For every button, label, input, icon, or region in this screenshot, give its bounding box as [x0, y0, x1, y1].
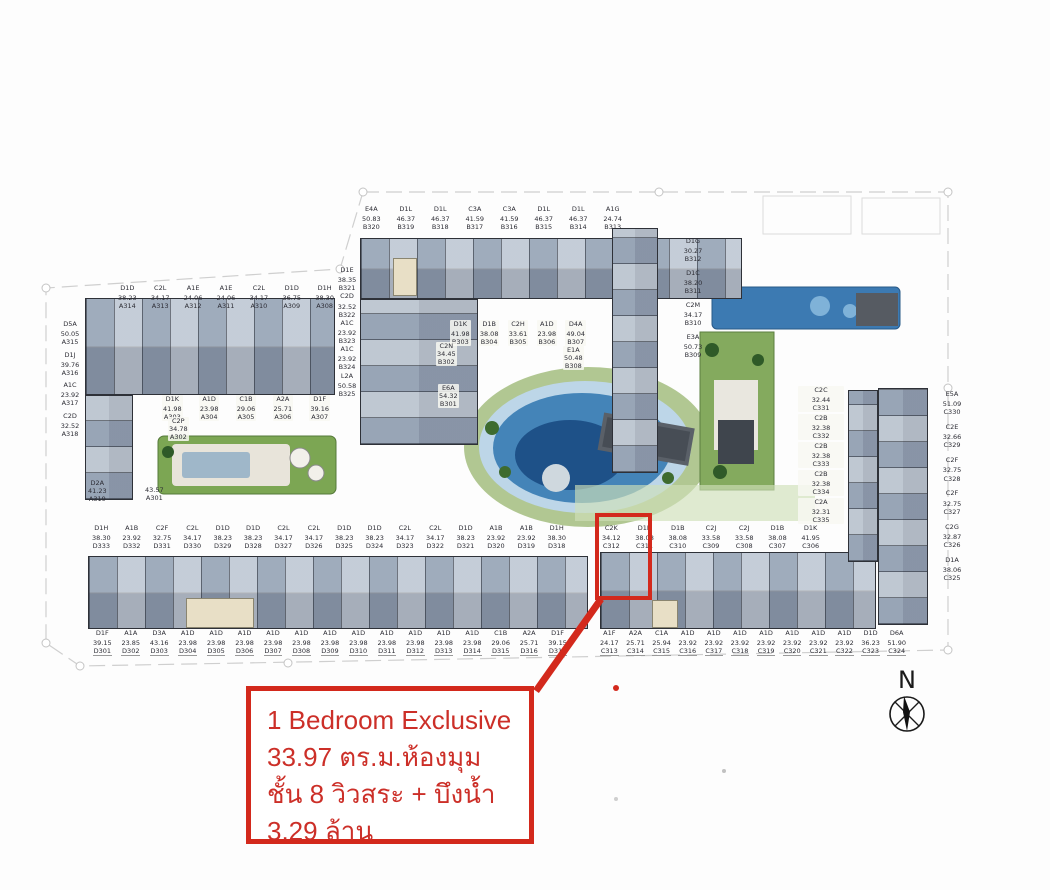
- building-b-left-labels: D1E38.35B321C2D32.52B322A1C23.92B323A1C2…: [331, 266, 363, 396]
- unit-label: D1K41.95C306: [801, 524, 820, 550]
- unit-label: A1B23.92D332: [122, 524, 141, 550]
- unit-label: A1D23.98D305: [207, 629, 226, 656]
- unit-label: L2A50.58B325: [331, 372, 363, 398]
- unit-label: A1A23.85D302: [121, 629, 140, 656]
- building-c-wing: [878, 388, 928, 625]
- unit-label: A1B23.92D319: [517, 524, 536, 550]
- unit-label: C2F32.75D331: [153, 524, 172, 550]
- building-a-top-labels: D1D38.23A314C2L34.17A313A1E24.06A312A1E2…: [118, 284, 334, 310]
- unit-label: A1D23.98D312: [406, 629, 425, 656]
- unit-label: A1D23.98A304: [199, 395, 220, 421]
- unit-label: D1H38.30D318: [547, 524, 566, 550]
- unit-label: C2L34.17D327: [274, 524, 293, 550]
- annotation-line-2: 33.97 ตร.ม.ห้องมุม: [267, 739, 523, 776]
- unit-label: D1E38.35B321: [331, 266, 363, 292]
- unit-label: A1C23.92B324: [331, 345, 363, 371]
- unit-label: D1A38.06C325: [934, 556, 970, 582]
- unit-label-b301: E6A54.32B301: [438, 384, 459, 408]
- building-c-bottom-labels: A1F24.17C313A2A25.71C314C1A25.94C315A1D2…: [600, 629, 906, 656]
- unit-label-b302: C2N34.45B302: [436, 342, 457, 366]
- annotation-line-4: 3.29 ล้าน: [267, 813, 523, 850]
- building-a-left-labels: D5A50.05A315D1J39.76A316A1C23.92A317C2D3…: [52, 320, 88, 438]
- unit-label: C2B32.38C332: [798, 414, 844, 440]
- unit-label: C2L34.17D326: [305, 524, 324, 550]
- unit-label: C2F32.75C328: [934, 456, 970, 482]
- unit-label: C2D32.52A318: [52, 412, 88, 438]
- unit-label: A1D23.92C316: [678, 629, 697, 656]
- building-a-slab: [85, 298, 335, 395]
- core-b: [393, 258, 417, 296]
- unit-label: A1E24.06A311: [217, 284, 236, 310]
- unit-label: C3A41.59B317: [465, 205, 484, 231]
- unit-label: C2L34.17D322: [426, 524, 445, 550]
- unit-label: D1D38.23A314: [118, 284, 137, 310]
- building-d-slab: [88, 556, 588, 629]
- unit-label: D3A43.16D303: [150, 629, 169, 656]
- unit-label: C2J33.58C309: [702, 524, 721, 550]
- unit-label: D1C38.20B311: [672, 269, 714, 295]
- unit-label: A1C23.92A317: [52, 381, 88, 407]
- faint-outline: [763, 196, 851, 234]
- unit-label: D1D36.75A309: [282, 284, 301, 310]
- highlight-rect-c312: [595, 513, 652, 600]
- unit-label: D1L46.37B315: [534, 205, 553, 231]
- garden-a: [158, 436, 336, 494]
- north-compass: N: [862, 662, 952, 752]
- unit-label: D1G30.27B312: [672, 237, 714, 263]
- unit-label: D6A51.90C324: [887, 629, 906, 656]
- lobby-c: [652, 600, 678, 628]
- unit-label: D1F39.15D301: [93, 629, 112, 656]
- unit-label: A1D23.98B306: [537, 320, 558, 346]
- unit-label: A1B23.92D320: [487, 524, 506, 550]
- unit-label: C2M34.17B310: [672, 301, 714, 327]
- building-d-top-labels: D1H38.30D333A1B23.92D332C2F32.75D331C2L3…: [92, 524, 566, 550]
- unit-label: A1D23.92C319: [757, 629, 776, 656]
- unit-label: D1H38.30D333: [92, 524, 111, 550]
- unit-label: A1D23.98D304: [178, 629, 197, 656]
- unit-label: C1A25.94C315: [652, 629, 671, 656]
- unit-label: D1B38.08B304: [479, 320, 500, 346]
- annotation-line-3: ชั้น 8 วิวสระ + บึงน้ำ: [267, 776, 523, 813]
- unit-label: E3A50.73B309: [672, 333, 714, 359]
- unit-label: A1D23.98D308: [292, 629, 311, 656]
- unit-label-a301: 43.57A301: [145, 486, 164, 502]
- unit-label: E4A50.83B320: [362, 205, 381, 231]
- unit-label: C2L34.17A310: [250, 284, 269, 310]
- unit-label: D1L46.37B318: [431, 205, 450, 231]
- building-d-bottom-labels: D1F39.15D301A1A23.85D302D3A43.16D303A1D2…: [93, 629, 567, 656]
- unit-label: C2J33.58C308: [735, 524, 754, 550]
- unit-label: D1F39.16A307: [309, 395, 330, 421]
- compass-n-label: N: [898, 666, 916, 694]
- unit-label: C2D32.52B322: [331, 292, 363, 318]
- unit-label-a302: C2P34.78A302: [168, 417, 189, 441]
- compass-needle: [903, 696, 910, 731]
- unit-label: A1C23.92B323: [331, 319, 363, 345]
- building-b-top-labels: E4A50.83B320D1L46.37B319D1L46.37B318C3A4…: [362, 205, 622, 231]
- building-b-right-wing: [612, 228, 658, 473]
- unit-label: A1D23.92C322: [835, 629, 854, 656]
- unit-label: D1D36.23C323: [861, 629, 880, 656]
- unit-label: A1D23.98D309: [321, 629, 340, 656]
- unit-label: C1B29.06D315: [491, 629, 510, 656]
- unit-label-a319: D2A41.23A319: [88, 479, 107, 503]
- unit-label: D4A49.04B307: [565, 320, 586, 346]
- speck: [614, 797, 618, 801]
- unit-label: D1B38.08C310: [668, 524, 687, 550]
- unit-label: D1J39.76A316: [52, 351, 88, 377]
- unit-label: C2L34.17A313: [151, 284, 170, 310]
- unit-label: C2L34.17D323: [396, 524, 415, 550]
- unit-label: C2B32.38C334: [798, 470, 844, 496]
- site-plan: D1D38.23A314C2L34.17A313A1E24.06A312A1E2…: [0, 0, 1050, 890]
- unit-label: E5A51.09C330: [934, 390, 970, 416]
- unit-label: C2G32.87C326: [934, 523, 970, 549]
- unit-label: D1D38.23D329: [213, 524, 232, 550]
- unit-label: D1D38.23D324: [365, 524, 384, 550]
- annotation-box: 1 Bedroom Exclusive 33.97 ตร.ม.ห้องมุม ช…: [246, 686, 534, 844]
- unit-label: D1L46.37B314: [569, 205, 588, 231]
- unit-label: C2H33.61B305: [508, 320, 529, 346]
- unit-label: A1D23.98D314: [463, 629, 482, 656]
- unit-label: D1F39.15D317: [548, 629, 567, 656]
- unit-label: A2A25.71A306: [273, 395, 294, 421]
- unit-label: C2L34.17D330: [183, 524, 202, 550]
- building-b-mid-labels: D1K41.98B303D1B38.08B304C2H33.61B305A1D2…: [450, 320, 586, 346]
- unit-label: D1D38.23D328: [244, 524, 263, 550]
- unit-label: D1D38.23D321: [456, 524, 475, 550]
- unit-label: C2C32.44C331: [798, 386, 844, 412]
- building-c-right-labels: E5A51.09C330C2E32.66C329C2F32.75C328C2F3…: [934, 390, 970, 582]
- unit-label: C1B29.06A305: [236, 395, 257, 421]
- unit-label: C2B32.38C333: [798, 442, 844, 468]
- unit-label: A1D23.98D313: [434, 629, 453, 656]
- unit-label: A1F24.17C313: [600, 629, 619, 656]
- building-b-right-labels: D1G30.27B312D1C38.20B311C2M34.17B310E3A5…: [672, 237, 714, 359]
- unit-label-b308: E1A50.48B308: [563, 346, 584, 370]
- unit-label: A2A25.71D316: [520, 629, 539, 656]
- unit-label: A1D23.98D311: [378, 629, 397, 656]
- unit-label: C2E32.66C329: [934, 423, 970, 449]
- unit-label: A1G24.74B313: [603, 205, 622, 231]
- unit-label: A1D23.98D310: [349, 629, 368, 656]
- annotation-line-1: 1 Bedroom Exclusive: [267, 702, 523, 739]
- unit-label: D1D38.23D325: [335, 524, 354, 550]
- unit-label: D1L46.37B319: [396, 205, 415, 231]
- unit-label: A1D23.92C317: [705, 629, 724, 656]
- speck: [722, 769, 726, 773]
- unit-label: A1D23.98D307: [264, 629, 283, 656]
- lobby-d: [186, 598, 254, 628]
- unit-label: A1D23.92C321: [809, 629, 828, 656]
- unit-label: D1B38.08C307: [768, 524, 787, 550]
- unit-label: A1E24.06A312: [184, 284, 203, 310]
- faint-outline: [862, 198, 940, 234]
- unit-label: A1D23.98D306: [235, 629, 254, 656]
- unit-label: C2A32.31C335: [798, 498, 844, 524]
- building-c-inner-strip: [848, 390, 878, 562]
- unit-label: A1D23.92C320: [783, 629, 802, 656]
- unit-label: A1D23.92C318: [731, 629, 750, 656]
- unit-label: D5A50.05A315: [52, 320, 88, 346]
- unit-label: C3A41.59B316: [500, 205, 519, 231]
- building-c-inner-labels: C2C32.44C331C2B32.38C332C2B32.38C333C2B3…: [798, 386, 844, 524]
- unit-label: A2A25.71C314: [626, 629, 645, 656]
- unit-label: C2F32.75C327: [934, 489, 970, 515]
